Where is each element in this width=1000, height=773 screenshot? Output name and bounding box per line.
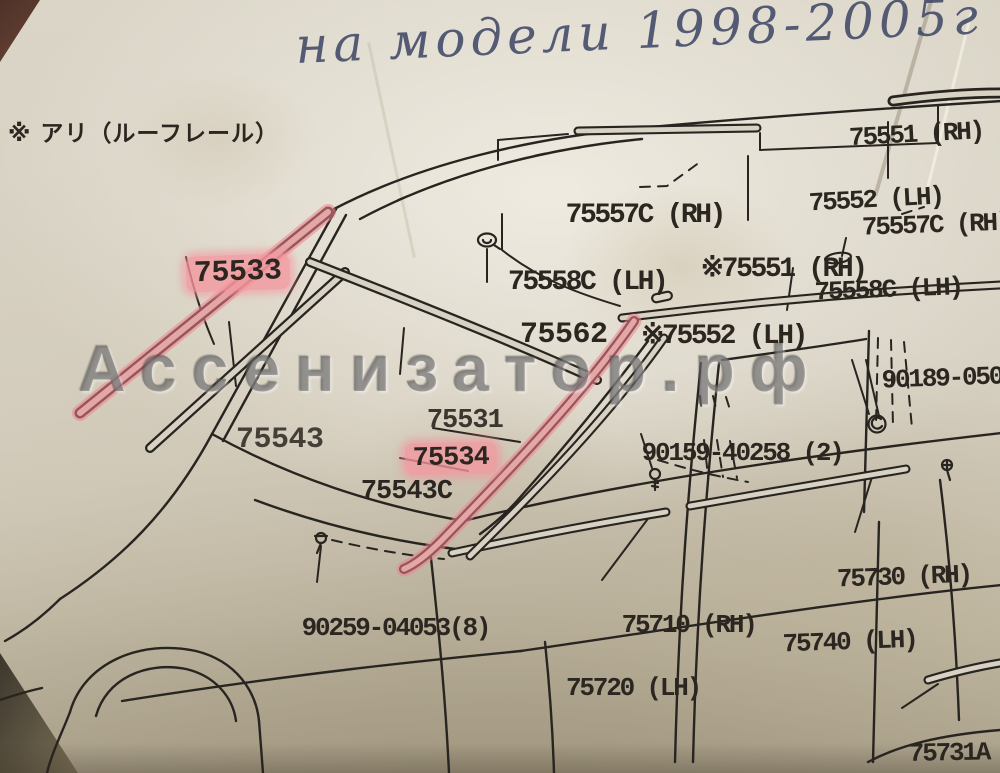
part-label-75710-75720: 75710 (RH) 75720 (LH) bbox=[568, 579, 756, 766]
part-number: 75710 (RH) bbox=[622, 610, 756, 640]
part-number: 75557C (RH) bbox=[861, 208, 1000, 243]
part-label-75730-75740: 75730 (RH) 75740 (LH) bbox=[782, 529, 976, 723]
screw-rear bbox=[942, 460, 952, 480]
part-label-90159: 90159-40258 (2) bbox=[588, 407, 843, 501]
part-label-90259: 90259-04053(8) bbox=[248, 582, 489, 676]
japanese-footnote: ※ アリ（ルーフレール） bbox=[8, 114, 279, 148]
part-label-75731a-75732a: 75731A (RH) 75732A (LH) bbox=[854, 705, 1000, 773]
part-number: 75558C (LH) bbox=[814, 270, 1000, 308]
part-number: 75740 (LH) bbox=[782, 622, 974, 660]
part-number: 75562 bbox=[520, 318, 608, 352]
part-number: 75543C bbox=[361, 477, 452, 507]
roof-moulding-center-75551 bbox=[578, 128, 757, 131]
part-label-756-lower-clipped: 756 bbox=[954, 392, 1000, 486]
part-number: 90259-04053(8) bbox=[302, 613, 490, 643]
part-number: 75720 (LH) bbox=[566, 673, 756, 704]
part-number: 75551 (RH) bbox=[848, 116, 983, 153]
part-label-75543c: 75543C bbox=[300, 444, 452, 541]
grommet-75562 bbox=[478, 234, 500, 250]
part-label-75533-highlighted: 75533 bbox=[114, 217, 291, 331]
part-number: 75730 (RH) bbox=[836, 560, 971, 595]
parts-catalog-page: на модели 1998-2005г ※ アリ（ルーフレール） Ассени… bbox=[0, 0, 1000, 773]
part-number: 75731A (RH) bbox=[909, 736, 1000, 769]
part-number: 90159-40258 (2) bbox=[642, 438, 843, 468]
part-number: 75533 bbox=[185, 253, 290, 293]
